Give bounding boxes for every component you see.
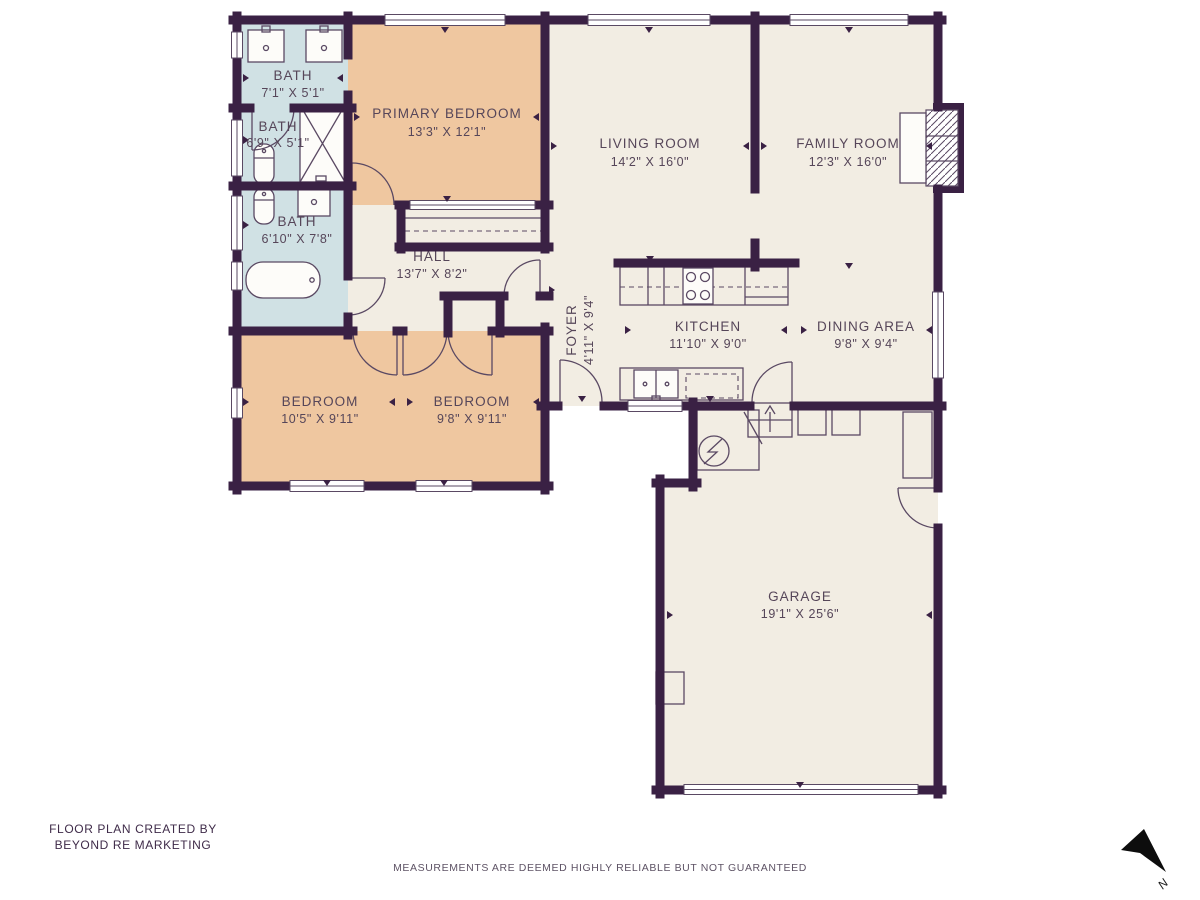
room-label-bedroom-right: BEDROOM	[434, 394, 511, 409]
credit-line-1: FLOOR PLAN CREATED BY	[49, 822, 217, 836]
room-dims-bedroom-left: 10'5" X 9'11"	[281, 412, 359, 426]
floor-plan-page: BATH 7'1" X 5'1" BATH 6'9" X 5'1" BATH 6…	[0, 0, 1200, 900]
room-dims-bath-top: 7'1" X 5'1"	[261, 86, 324, 100]
toilet-icon	[254, 188, 274, 224]
room-dims-bedroom-right: 9'8" X 9'11"	[437, 412, 507, 426]
room-label-primary-bedroom: PRIMARY BEDROOM	[372, 106, 522, 121]
room-label-bedroom-left: BEDROOM	[282, 394, 359, 409]
disclaimer-text: MEASUREMENTS ARE DEEMED HIGHLY RELIABLE …	[393, 862, 807, 874]
room-dims-dining-area: 9'8" X 9'4"	[834, 337, 897, 351]
room-label-bath-lower: BATH	[277, 214, 316, 229]
room-label-garage: GARAGE	[768, 589, 832, 604]
room-label-bath-top: BATH	[273, 68, 312, 83]
room-dims-family-room: 12'3" X 16'0"	[809, 155, 887, 169]
room-dims-bath-lower: 6'10" X 7'8"	[262, 232, 333, 246]
room-dims-kitchen: 11'10" X 9'0"	[669, 337, 747, 351]
floor-plan-drawing: BATH 7'1" X 5'1" BATH 6'9" X 5'1" BATH 6…	[0, 0, 1200, 900]
room-label-bath-mid: BATH	[258, 119, 297, 134]
room-dims-foyer: 4'11" X 9'4"	[582, 295, 596, 365]
north-arrow-icon: N	[1121, 829, 1171, 892]
vanity-sink-icon	[298, 188, 330, 216]
room-label-foyer: FOYER	[564, 304, 579, 356]
room-label-family-room: FAMILY ROOM	[796, 136, 900, 151]
room-dims-bath-mid: 6'9" X 5'1"	[246, 136, 309, 150]
footer: FLOOR PLAN CREATED BY BEYOND RE MARKETIN…	[49, 822, 807, 874]
bathtub-icon	[246, 262, 320, 298]
room-dims-hall: 13'7" X 8'2"	[397, 267, 468, 281]
north-label: N	[1155, 876, 1171, 892]
room-label-hall: HALL	[413, 249, 451, 264]
credit-line-2: BEYOND RE MARKETING	[55, 838, 212, 852]
room-label-kitchen: KITCHEN	[675, 319, 741, 334]
room-dims-primary-bedroom: 13'3" X 12'1"	[408, 125, 486, 139]
room-dims-living-room: 14'2" X 16'0"	[611, 155, 689, 169]
room-label-living-room: LIVING ROOM	[599, 136, 700, 151]
room-label-dining-area: DINING AREA	[817, 319, 915, 334]
room-dims-garage: 19'1" X 25'6"	[761, 607, 839, 621]
